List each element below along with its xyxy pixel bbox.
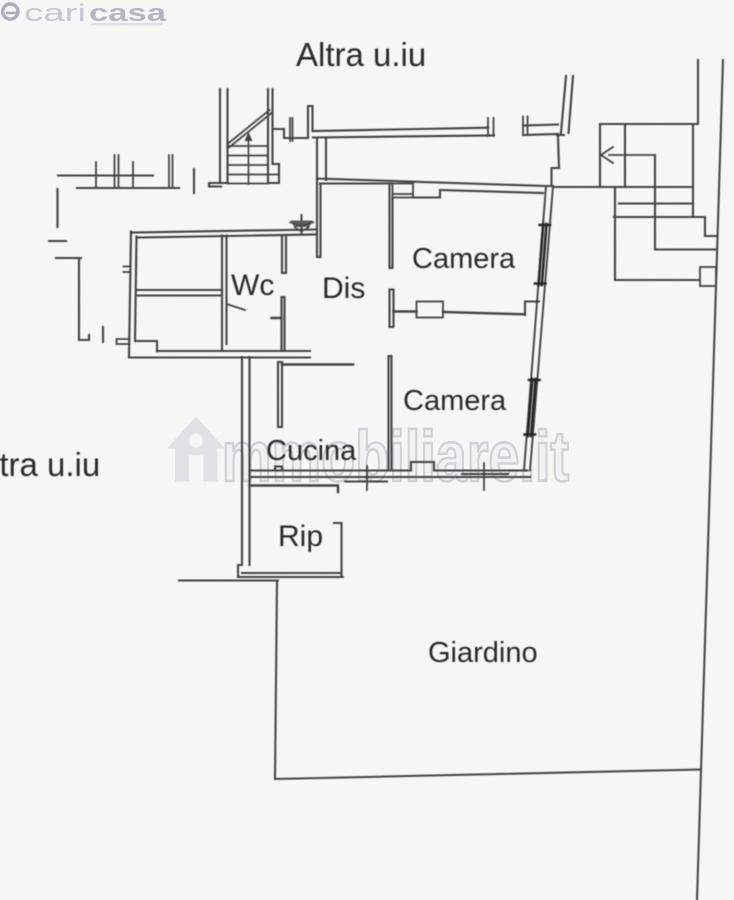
svg-text:Dis: Dis (322, 272, 365, 305)
svg-text:Rip: Rip (278, 520, 323, 553)
svg-text:Camera: Camera (412, 243, 516, 275)
svg-text:cari: cari (24, 0, 86, 27)
svg-text:Cucina: Cucina (266, 435, 357, 467)
svg-text:casa: casa (89, 0, 167, 27)
svg-text:Camera: Camera (403, 385, 507, 417)
svg-text:Wc: Wc (231, 269, 274, 302)
svg-text:Altra u.iu: Altra u.iu (0, 446, 100, 483)
svg-text:Altra u.iu: Altra u.iu (296, 36, 426, 73)
svg-text:Giardino: Giardino (428, 637, 538, 669)
